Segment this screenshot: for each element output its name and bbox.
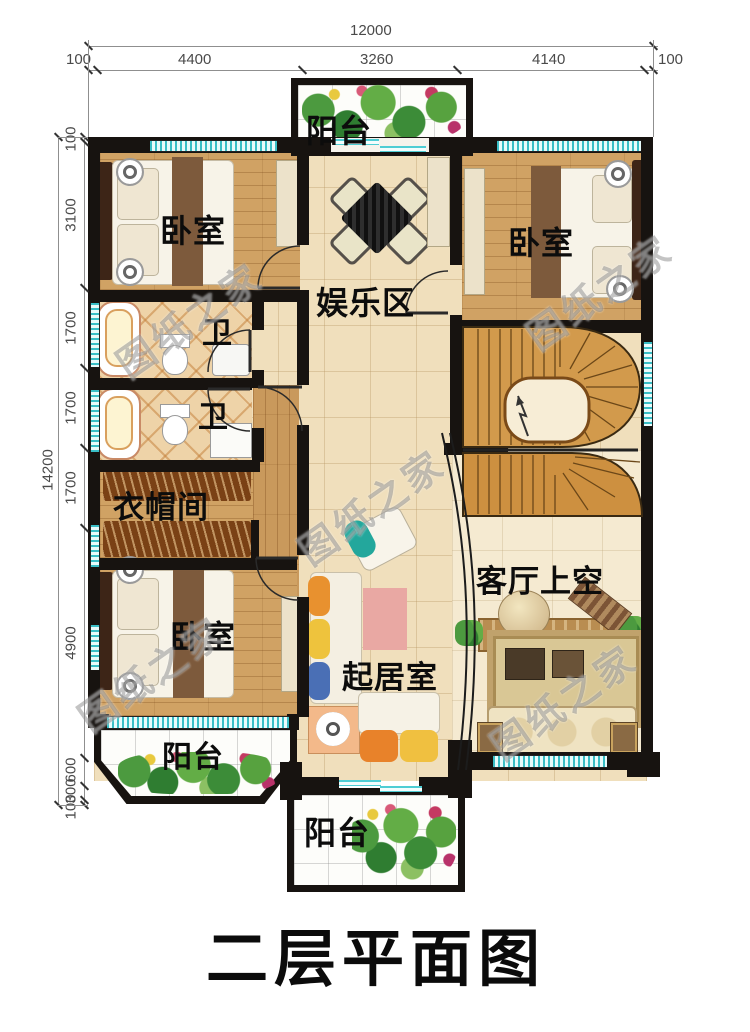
dim-seg: 100 [658, 51, 683, 68]
dim-seg: 4140 [532, 51, 565, 68]
dim-seg: 4900 [63, 626, 80, 659]
dim-total-left: 14200 [40, 449, 57, 491]
dim-seg: 1700 [63, 391, 80, 424]
dim-seg: 100 [63, 794, 80, 819]
dim-total-top: 12000 [350, 22, 392, 39]
dim-line-top-chain [88, 70, 658, 71]
dim-line-top-total [88, 46, 658, 47]
floor-plan-page: 阳台 卧室 卧室 娱乐区 卫 卫 衣帽间 卧室 客厅上空 起居室 阳台 阳台 图… [0, 0, 750, 1032]
dim-seg: 1700 [63, 311, 80, 344]
dim-seg: 3100 [63, 198, 80, 231]
page-title: 二层平面图 [206, 908, 546, 998]
extension-line [58, 805, 88, 806]
dim-seg: 100 [63, 126, 80, 151]
room-label-bath2: 卫 [198, 392, 229, 436]
dim-line-left-total [58, 137, 59, 805]
room-label-balcony-bottom: 阳台 [304, 808, 370, 854]
dim-seg: 3260 [360, 51, 393, 68]
room-label-balcony-top: 阳台 [306, 106, 372, 152]
dim-seg: 4400 [178, 51, 211, 68]
extension-line [88, 40, 89, 137]
dim-seg: 1700 [63, 471, 80, 504]
room-label-balcony-bl: 阳台 [162, 732, 224, 776]
room-label-sitting: 起居室 [342, 652, 438, 697]
room-label-bedroom-tr: 卧室 [508, 218, 574, 264]
room-label-cloakroom: 衣帽间 [113, 482, 209, 527]
extension-line [58, 137, 88, 138]
room-label-bedroom-tl: 卧室 [160, 206, 226, 252]
room-label-living-void: 客厅上空 [476, 556, 604, 601]
extension-line [653, 40, 654, 137]
room-label-entertainment: 娱乐区 [316, 278, 415, 324]
dim-line-left-chain [84, 137, 85, 805]
